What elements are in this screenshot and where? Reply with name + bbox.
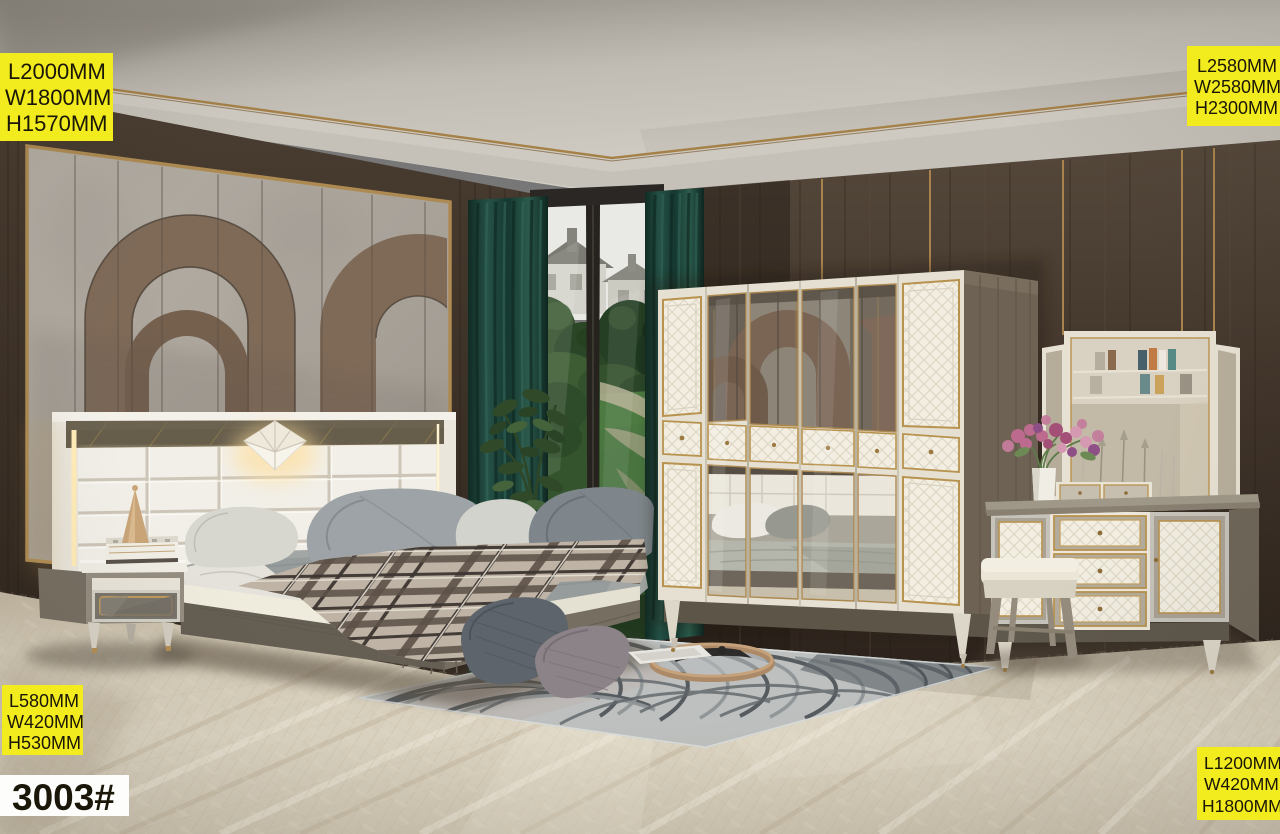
svg-text:3003#: 3003# (12, 777, 115, 818)
svg-text:H530MM: H530MM (8, 733, 81, 753)
svg-text:L1200MM: L1200MM (1204, 753, 1280, 773)
svg-text:W420MM: W420MM (1204, 774, 1279, 794)
svg-text:W2580MM: W2580MM (1194, 77, 1280, 97)
svg-text:H1800MM: H1800MM (1202, 796, 1280, 816)
svg-text:L2580MM: L2580MM (1197, 56, 1277, 76)
svg-text:W420MM: W420MM (7, 712, 84, 732)
svg-text:H2300MM: H2300MM (1195, 98, 1278, 118)
svg-text:H1570MM: H1570MM (6, 111, 107, 136)
svg-text:L2000MM: L2000MM (8, 59, 106, 84)
svg-text:W1800MM: W1800MM (5, 85, 111, 110)
svg-text:L580MM: L580MM (9, 691, 79, 711)
